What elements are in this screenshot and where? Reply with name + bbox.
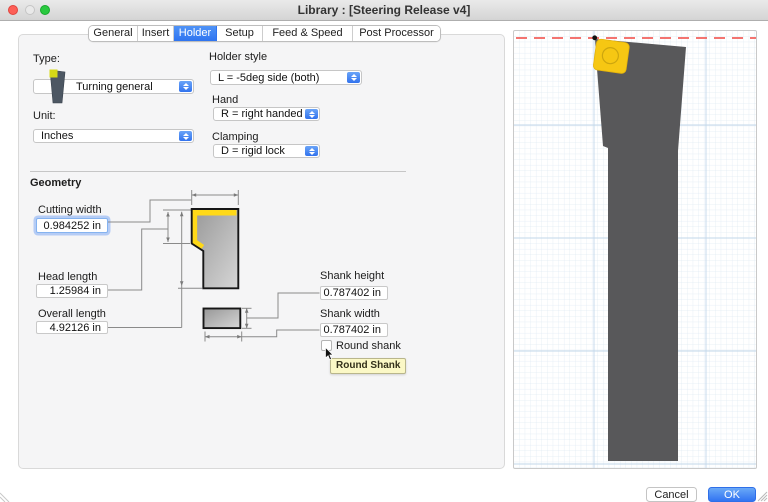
holder-style-label: Holder style <box>209 51 267 63</box>
tab-general[interactable]: General <box>89 26 138 41</box>
clamping-dropdown[interactable]: D = rigid lock <box>213 144 320 158</box>
resize-grip-icon[interactable] <box>0 493 10 502</box>
tab-feed-and-speed[interactable]: Feed & Speed <box>263 26 353 41</box>
dropdown-stepper-icon <box>179 81 192 92</box>
overall-length-label: Overall length <box>38 308 106 320</box>
tab-bar: General Insert Holder Setup Feed & Speed… <box>88 25 441 42</box>
clamping-dropdown-value: D = rigid lock <box>221 145 285 157</box>
holder-preview-canvas[interactable] <box>513 30 757 469</box>
tab-setup[interactable]: Setup <box>217 26 263 41</box>
unit-label: Unit: <box>33 110 56 122</box>
cutting-width-input[interactable]: 0.984252 in <box>36 218 108 233</box>
hand-dropdown[interactable]: R = right handed <box>213 107 320 121</box>
window-title: Library : [Steering Release v4] <box>0 3 768 17</box>
dropdown-stepper-icon <box>305 109 318 119</box>
section-divider <box>30 171 406 172</box>
tool-tip-point <box>592 35 597 40</box>
holder-style-dropdown-value: L = -5deg side (both) <box>218 72 319 84</box>
ok-button[interactable]: OK <box>708 487 756 502</box>
hand-dropdown-value: R = right handed <box>221 108 303 120</box>
head-length-input[interactable]: 1.25984 in <box>36 284 108 298</box>
hand-label: Hand <box>212 94 238 106</box>
turning-tool-icon <box>46 67 70 105</box>
holder-preview-drawing <box>514 31 757 469</box>
head-length-label: Head length <box>38 271 97 283</box>
type-label: Type: <box>33 53 60 65</box>
cutting-width-label: Cutting width <box>38 204 102 216</box>
holder-body-shape <box>595 39 686 461</box>
dropdown-stepper-icon <box>179 131 192 141</box>
cancel-button[interactable]: Cancel <box>646 487 697 502</box>
insert-shape <box>593 39 630 74</box>
round-shank-tooltip: Round Shank <box>330 358 406 374</box>
type-dropdown-value: Turning general <box>76 81 153 93</box>
unit-dropdown[interactable]: Inches <box>33 129 194 143</box>
geometry-heading: Geometry <box>30 177 81 189</box>
title-bar: Library : [Steering Release v4] <box>0 0 768 21</box>
holder-style-dropdown[interactable]: L = -5deg side (both) <box>210 70 362 85</box>
tab-holder[interactable]: Holder <box>174 26 217 41</box>
resize-grip-icon[interactable] <box>757 492 768 502</box>
tab-post-processor[interactable]: Post Processor <box>353 26 440 41</box>
unit-dropdown-value: Inches <box>41 130 73 142</box>
overall-length-input[interactable]: 4.92126 in <box>36 321 108 334</box>
mouse-cursor-icon <box>325 347 335 361</box>
holder-geometry-diagram <box>105 185 400 350</box>
dropdown-stepper-icon <box>347 72 360 83</box>
clamping-label: Clamping <box>212 131 258 143</box>
tab-insert[interactable]: Insert <box>138 26 174 41</box>
dropdown-stepper-icon <box>305 146 318 156</box>
